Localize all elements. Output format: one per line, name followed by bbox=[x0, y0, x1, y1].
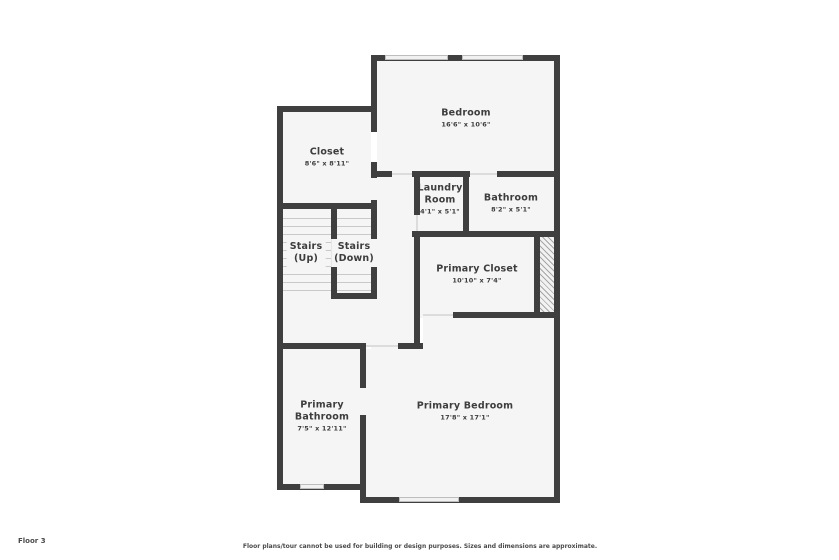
floor-label: Floor 3 bbox=[18, 537, 46, 545]
wall bbox=[554, 55, 560, 503]
wall bbox=[277, 203, 377, 209]
wall bbox=[277, 106, 283, 490]
wall bbox=[453, 312, 560, 318]
window bbox=[462, 55, 523, 60]
room-dims: 17'8" x 17'1" bbox=[417, 413, 514, 424]
room-dims: 7'5" x 12'11" bbox=[295, 424, 349, 435]
wall bbox=[360, 497, 560, 503]
room-name: Bathroom bbox=[484, 193, 538, 205]
room-name: Bedroom bbox=[441, 108, 491, 120]
wall bbox=[360, 415, 366, 503]
wall bbox=[534, 231, 540, 318]
wall bbox=[277, 106, 377, 112]
room-dims: 10'10" x 7'4" bbox=[436, 276, 518, 287]
room-dims: 8'2" x 5'1" bbox=[484, 205, 538, 216]
room-floor-hallway bbox=[371, 177, 420, 349]
room-dims: 8'6" x 8'11" bbox=[305, 159, 350, 170]
room-name: Laundry bbox=[417, 183, 462, 195]
room-name: Closet bbox=[305, 147, 350, 159]
floor-plan-canvas: Bedroom 16'6" x 10'6" Closet 8'6" x 8'11… bbox=[0, 0, 839, 560]
room-label-primary-bathroom: Primary Bathroom 7'5" x 12'11" bbox=[295, 400, 349, 435]
room-name: (Down) bbox=[334, 253, 374, 265]
room-label-primary-closet: Primary Closet 10'10" x 7'4" bbox=[436, 264, 518, 287]
door-threshold bbox=[392, 173, 412, 175]
wall bbox=[371, 55, 377, 132]
room-floor-primary-bedroom-left bbox=[366, 349, 423, 503]
room-dims: 16'6" x 10'6" bbox=[441, 120, 491, 131]
room-label-bathroom: Bathroom 8'2" x 5'1" bbox=[484, 193, 538, 216]
room-label-bedroom: Bedroom 16'6" x 10'6" bbox=[441, 108, 491, 131]
room-label-stairs-down: Stairs (Down) bbox=[331, 239, 377, 267]
room-label-primary-bedroom: Primary Bedroom 17'8" x 17'1" bbox=[417, 401, 514, 424]
door-threshold bbox=[470, 173, 497, 175]
room-name: Primary Bedroom bbox=[417, 401, 514, 413]
room-dims: 4'1" x 5'1" bbox=[417, 207, 462, 218]
wall bbox=[463, 171, 469, 237]
room-label-closet: Closet 8'6" x 8'11" bbox=[305, 147, 350, 170]
room-name: Stairs bbox=[290, 241, 323, 253]
room-label-laundry: Laundry Room 4'1" x 5'1" bbox=[417, 183, 462, 218]
room-name: Primary bbox=[295, 400, 349, 412]
room-name: Stairs bbox=[334, 241, 374, 253]
room-label-stairs-up: Stairs (Up) bbox=[287, 239, 326, 267]
disclaimer-text: Floor plans/tour cannot be used for buil… bbox=[243, 543, 597, 550]
room-name: Bathroom bbox=[295, 412, 349, 424]
wall bbox=[414, 231, 420, 349]
wall bbox=[277, 343, 366, 349]
wall bbox=[371, 162, 377, 178]
wall bbox=[360, 343, 366, 388]
hatched-shaft-area bbox=[540, 237, 554, 313]
window bbox=[385, 55, 448, 60]
window bbox=[300, 484, 324, 489]
room-name: Primary Closet bbox=[436, 264, 518, 276]
window bbox=[399, 497, 459, 502]
door-threshold bbox=[423, 314, 453, 316]
wall bbox=[412, 171, 470, 177]
room-name: (Up) bbox=[290, 253, 323, 265]
wall bbox=[497, 171, 560, 177]
door-threshold bbox=[366, 345, 398, 347]
room-name: Room bbox=[417, 195, 462, 207]
